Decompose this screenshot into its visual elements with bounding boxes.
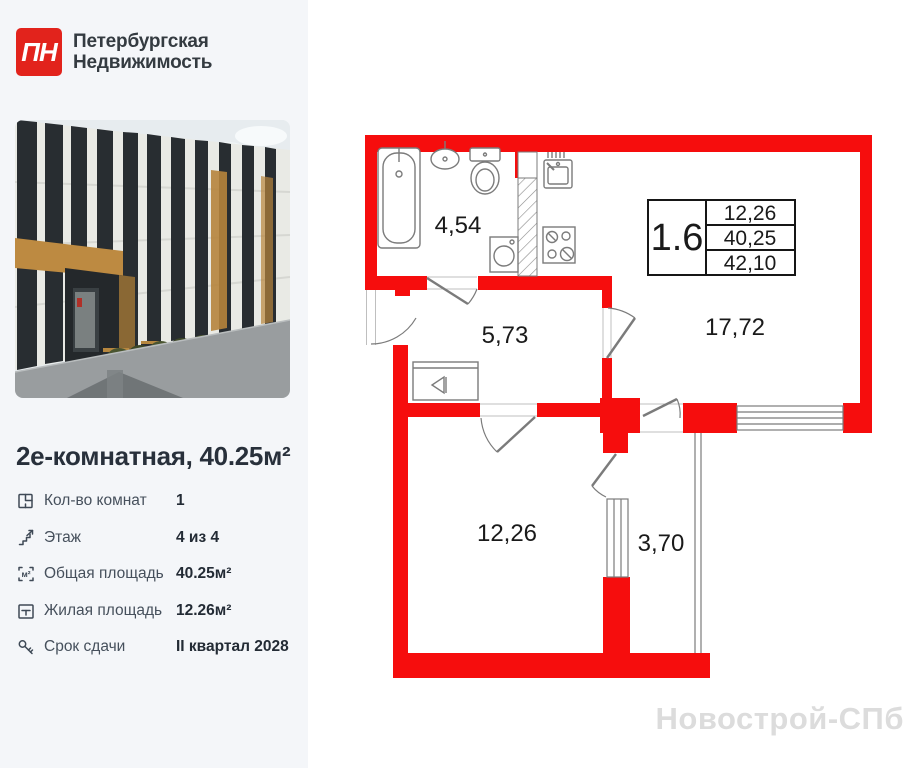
unit-info-table: 1.6 12,26 40,25 42,10: [648, 200, 795, 275]
listing-title: 2е-комнатная, 40.25м²: [16, 441, 302, 472]
total-area-icon: м²: [16, 564, 36, 584]
detail-value: 40.25м²: [176, 565, 231, 583]
detail-value: 4 из 4: [176, 529, 219, 547]
unit-table-row: 12,26: [724, 202, 777, 225]
detail-label: Жилая площадь: [44, 602, 162, 620]
key-icon: [16, 637, 36, 657]
detail-label: Срок сдачи: [44, 638, 125, 656]
detail-value: 12.26м²: [176, 602, 231, 620]
unit-table-row: 40,25: [724, 227, 777, 250]
hallway-area-label: 5,73: [482, 322, 529, 349]
kitchen-sink-icon: [544, 152, 572, 188]
stove-icon: [543, 227, 575, 263]
detail-value: II квартал 2028: [176, 638, 289, 656]
listing-widget: ПН Петербургская Недвижимость: [0, 0, 922, 768]
detail-label: Этаж: [44, 529, 81, 547]
brand-name-line2: Недвижимость: [73, 52, 212, 73]
brand-name-line1: Петербургская: [73, 31, 212, 52]
brand-header: ПН Петербургская Недвижимость: [16, 28, 212, 76]
bedroom-area-label: 12,26: [477, 520, 537, 547]
detail-row-rooms: Кол-во комнат 1: [16, 488, 302, 525]
floor-plan: 4,54 5,73 17,72 12,26 3,70 1.6 12,26 40,…: [358, 130, 918, 680]
bathtub-icon: [378, 148, 420, 248]
detail-label: Кол-во комнат: [44, 492, 147, 510]
kitchen-living-area-label: 17,72: [705, 314, 765, 341]
balcony-area-label: 3,70: [638, 530, 685, 557]
unit-table-row: 42,10: [724, 252, 777, 275]
watermark: Новострой-СПб: [656, 701, 905, 737]
bathroom-area-label: 4,54: [435, 212, 482, 239]
living-area-icon: [16, 601, 36, 621]
left-panel: ПН Петербургская Недвижимость: [0, 0, 308, 768]
building-photo: [15, 120, 290, 398]
washing-machine-icon: [490, 237, 518, 272]
wardrobe-icon: [413, 362, 478, 400]
brand-name: Петербургская Недвижимость: [73, 31, 212, 73]
detail-value: 1: [176, 492, 185, 510]
toilet-icon: [470, 148, 500, 194]
unit-code: 1.6: [651, 217, 704, 259]
vent-shaft: [518, 152, 537, 276]
detail-row-floor: Этаж 4 из 4: [16, 525, 302, 562]
detail-label: Общая площадь: [44, 565, 164, 583]
brand-logo-icon: ПН: [16, 28, 62, 76]
floor-stairs-icon: [16, 528, 36, 548]
rooms-count-icon: [16, 491, 36, 511]
detail-row-living-area: Жилая площадь 12.26м²: [16, 598, 302, 635]
svg-text:м²: м²: [21, 569, 30, 579]
details-list: Кол-во комнат 1 Этаж 4 из 4 м²: [16, 488, 302, 671]
detail-row-total-area: м² Общая площадь 40.25м²: [16, 561, 302, 598]
detail-row-completion: Срок сдачи II квартал 2028: [16, 634, 302, 671]
